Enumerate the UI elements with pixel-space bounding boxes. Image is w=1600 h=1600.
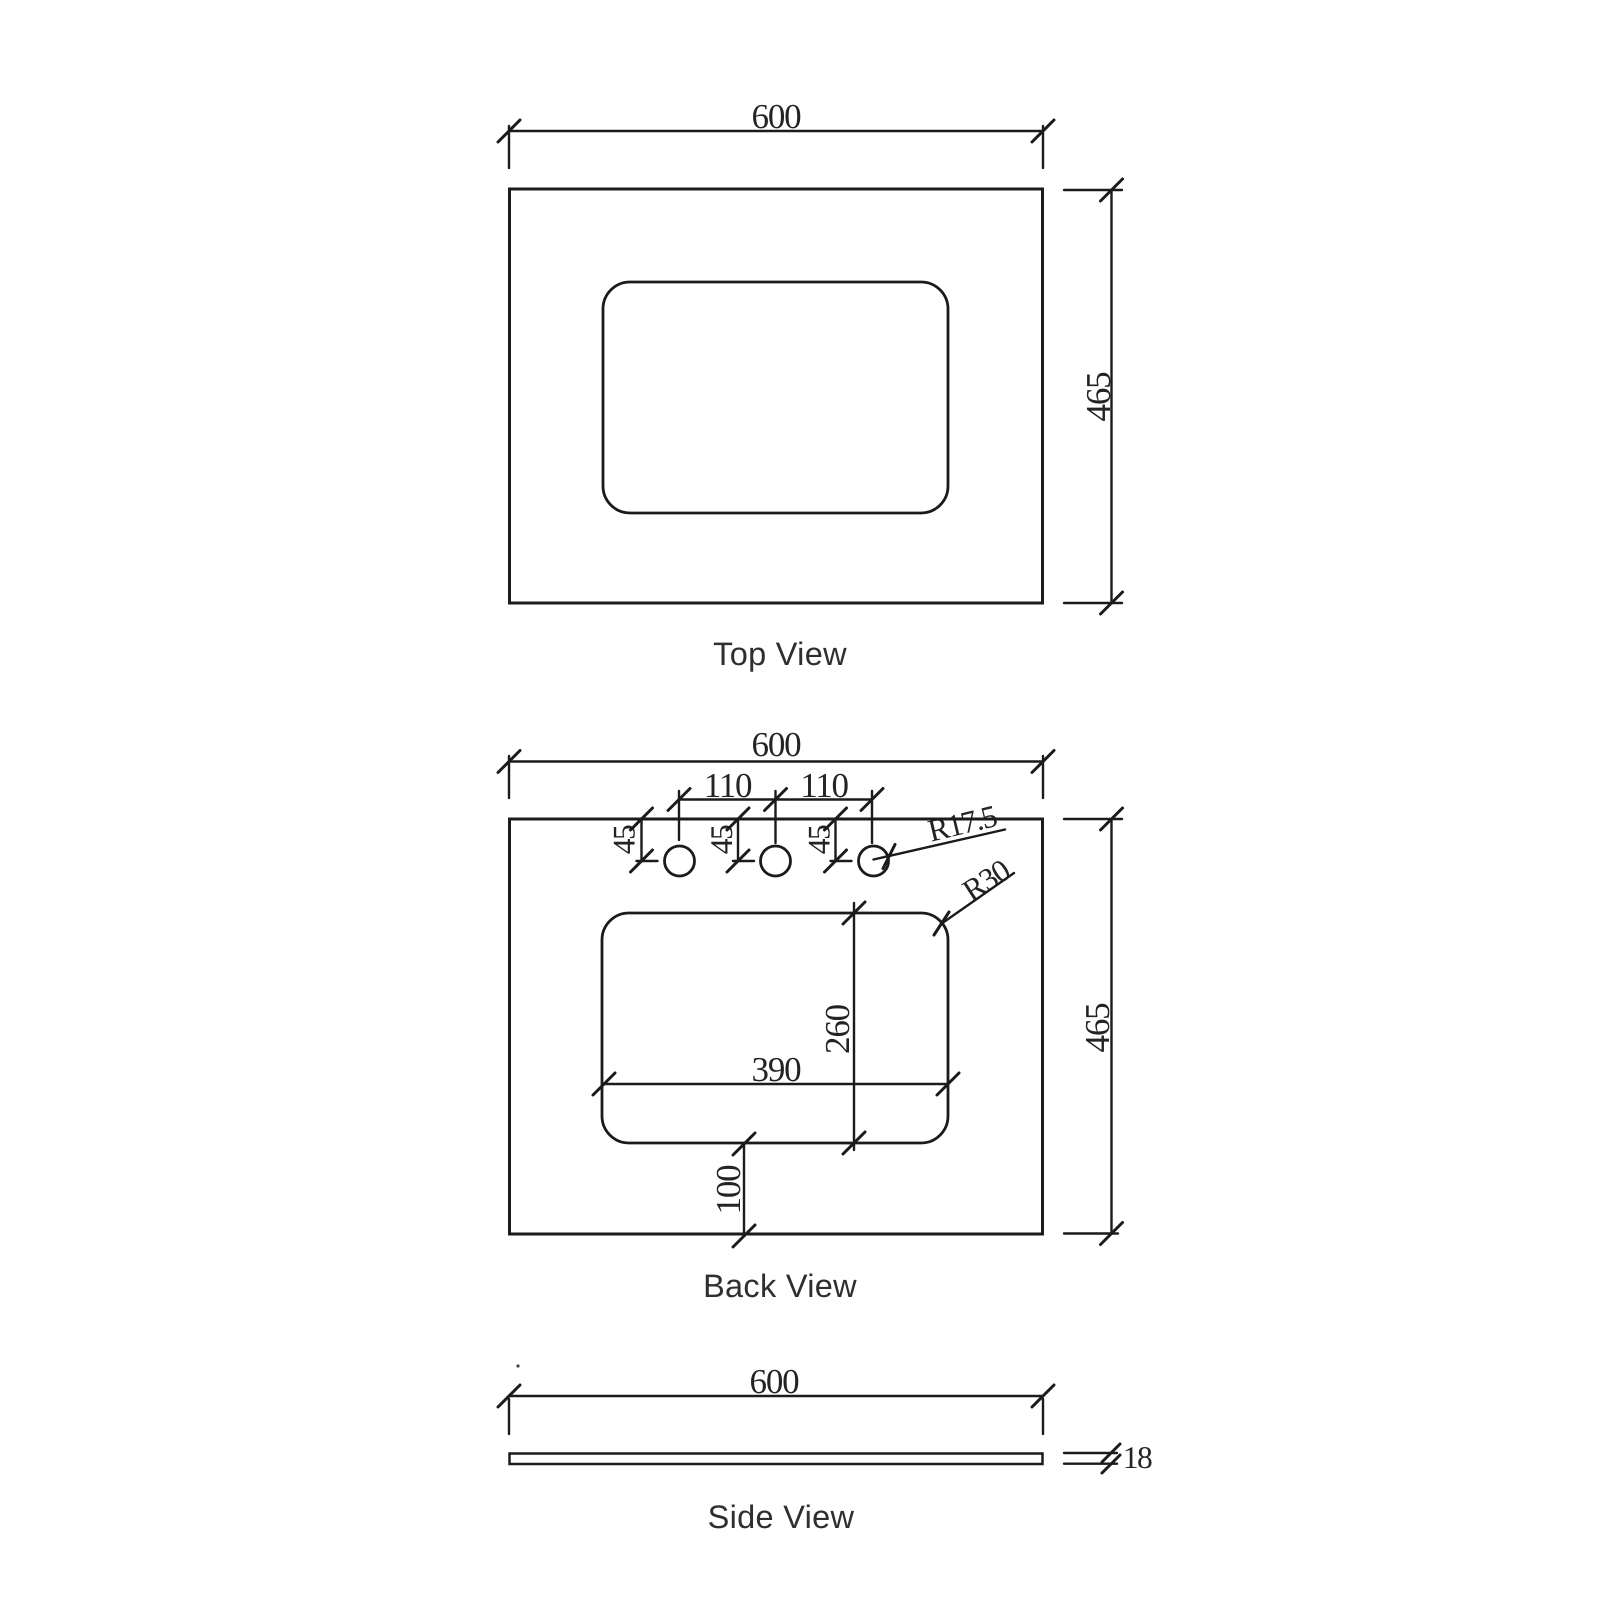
svg-text:600: 600	[750, 1362, 800, 1401]
svg-text:110: 110	[800, 766, 848, 805]
svg-text:Side View: Side View	[708, 1499, 855, 1535]
svg-text:18: 18	[1123, 1440, 1152, 1475]
svg-text:45: 45	[704, 825, 739, 854]
svg-text:Back View: Back View	[703, 1268, 857, 1304]
svg-text:45: 45	[607, 825, 642, 854]
svg-text:45: 45	[802, 825, 837, 854]
svg-text:260: 260	[818, 1004, 857, 1054]
svg-text:110: 110	[704, 766, 752, 805]
svg-text:R17.5: R17.5	[924, 798, 1000, 848]
svg-text:Top View: Top View	[713, 636, 847, 672]
svg-text:R30: R30	[956, 852, 1016, 908]
svg-text:600: 600	[752, 97, 802, 136]
svg-text:465: 465	[1079, 372, 1118, 422]
svg-text:600: 600	[752, 725, 802, 764]
svg-text:100: 100	[709, 1165, 748, 1215]
svg-text:465: 465	[1078, 1003, 1117, 1053]
svg-text:390: 390	[752, 1050, 802, 1089]
